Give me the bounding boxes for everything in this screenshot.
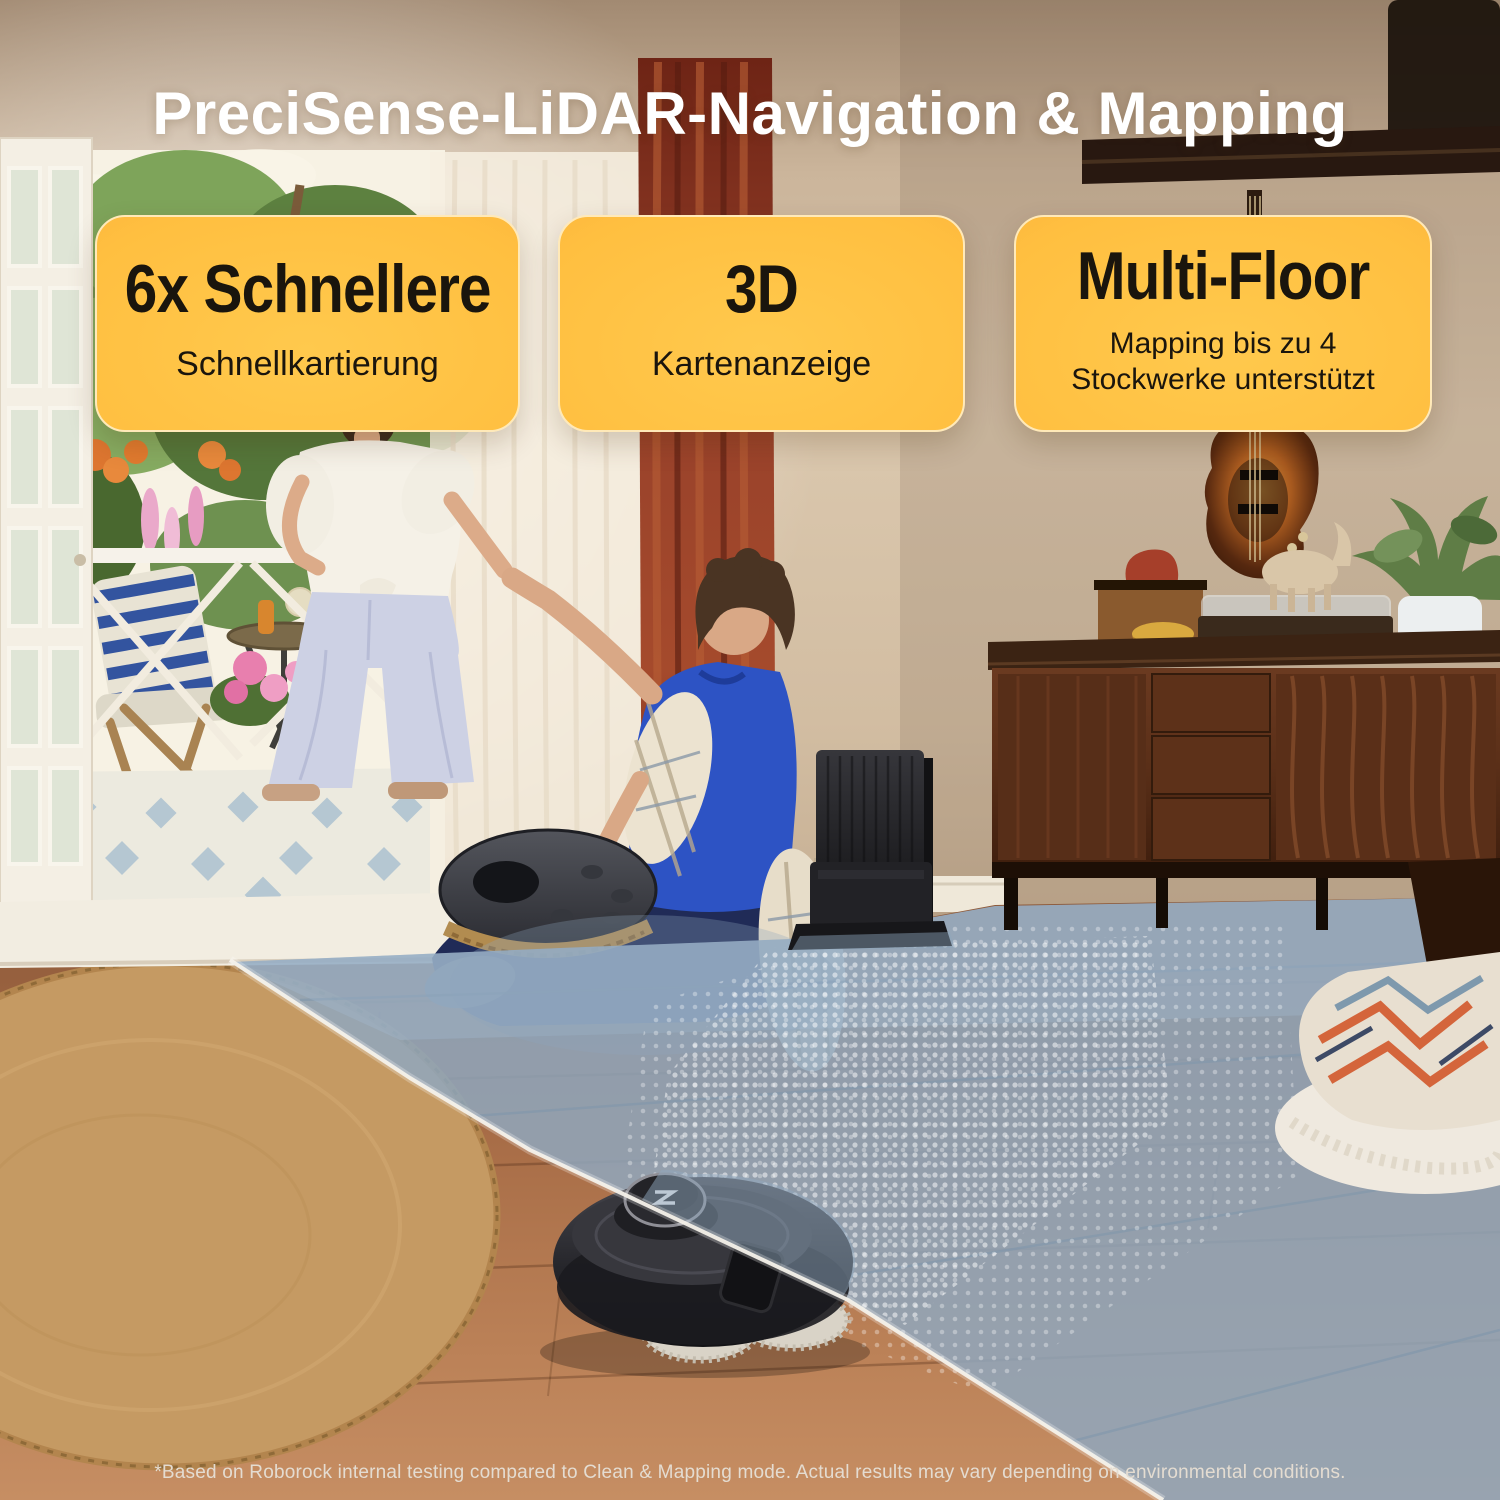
feature-card-3d-map: 3D Kartenanzeige — [558, 215, 965, 432]
french-door — [0, 138, 92, 1014]
card-heading: 3D — [725, 255, 798, 324]
card-subheading: Kartenanzeige — [652, 344, 871, 385]
marketing-image: PreciSense-LiDAR-Navigation & Mapping 6x… — [0, 0, 1500, 1500]
woman-shoe — [262, 784, 320, 801]
card-heading: 6x Schnellere — [125, 255, 491, 324]
disclaimer-text: *Based on Roborock internal testing comp… — [0, 1462, 1500, 1484]
page-title: PreciSense-LiDAR-Navigation & Mapping — [0, 82, 1500, 145]
card-subheading: Mapping bis zu 4 Stockwerke unterstützt — [1033, 326, 1413, 399]
woman-shoe — [388, 782, 448, 799]
card-subheading: Schnellkartierung — [176, 344, 439, 385]
card-heading: Multi-Floor — [1077, 242, 1370, 311]
door-handle — [74, 554, 86, 566]
feature-card-multi-floor: Multi-Floor Mapping bis zu 4 Stockwerke … — [1014, 215, 1432, 432]
feature-card-fast-mapping: 6x Schnellere Schnellkartierung — [95, 215, 520, 432]
